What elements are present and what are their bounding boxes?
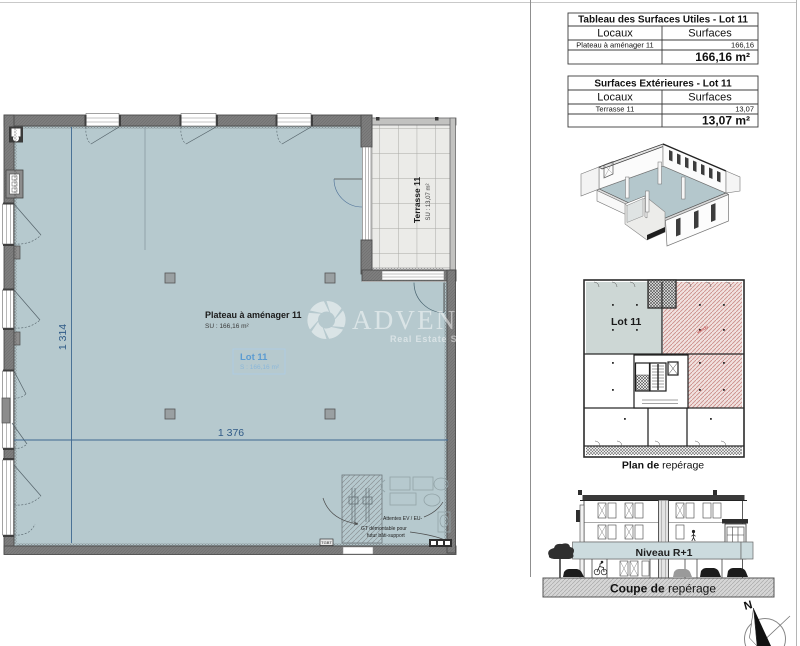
svg-text:Lot 11: Lot 11 [240,352,268,363]
svg-text:Surfaces: Surfaces [688,92,732,104]
svg-text:Terrasse 11: Terrasse 11 [596,105,635,114]
svg-text:Plan de repérage: Plan de repérage [622,460,704,472]
svg-text:SU : 13,07 m²: SU : 13,07 m² [426,183,432,220]
svg-text:Tableau des Surfaces Utiles -: Tableau des Surfaces Utiles - Lot 11 [578,15,748,26]
svg-text:Plateau à aménager 11: Plateau à aménager 11 [205,310,302,320]
svg-text:TGBT: TGBT [321,540,332,545]
svg-text:GT démontable pour: GT démontable pour [361,526,407,532]
svg-text:Plateau à aménager 11: Plateau à aménager 11 [576,41,653,50]
svg-text:166,16: 166,16 [731,41,754,50]
svg-text:Locaux: Locaux [597,28,633,40]
svg-text:N: N [743,599,754,613]
svg-text:1 314: 1 314 [57,324,69,350]
svg-text:Coupe de repérage: Coupe de repérage [610,582,716,596]
svg-text:Lot 11: Lot 11 [611,316,642,328]
svg-text:Niveau R+1: Niveau R+1 [636,547,693,559]
svg-text:SU : 166,16 m²: SU : 166,16 m² [205,323,250,330]
svg-text:Terrasse 11: Terrasse 11 [412,177,422,223]
svg-text:Surfaces: Surfaces [688,28,732,40]
svg-text:Surfaces Extérieures - Lot 11: Surfaces Extérieures - Lot 11 [594,79,732,90]
svg-text:Locaux: Locaux [597,92,633,104]
svg-text:ADVENI: ADVENI [352,305,469,335]
svg-text:Real Estate Sol: Real Estate Sol [390,334,467,344]
svg-text:13,07 m²: 13,07 m² [702,114,750,128]
svg-text:futur bâti-support: futur bâti-support [367,533,405,539]
svg-text:S : 166,16 m²: S : 166,16 m² [240,364,280,371]
svg-text:166,16 m²: 166,16 m² [695,50,750,64]
svg-text:1 376: 1 376 [218,427,244,439]
svg-text:13,07: 13,07 [735,105,754,114]
svg-text:Attentes EV / EU-: Attentes EV / EU- [383,516,423,522]
